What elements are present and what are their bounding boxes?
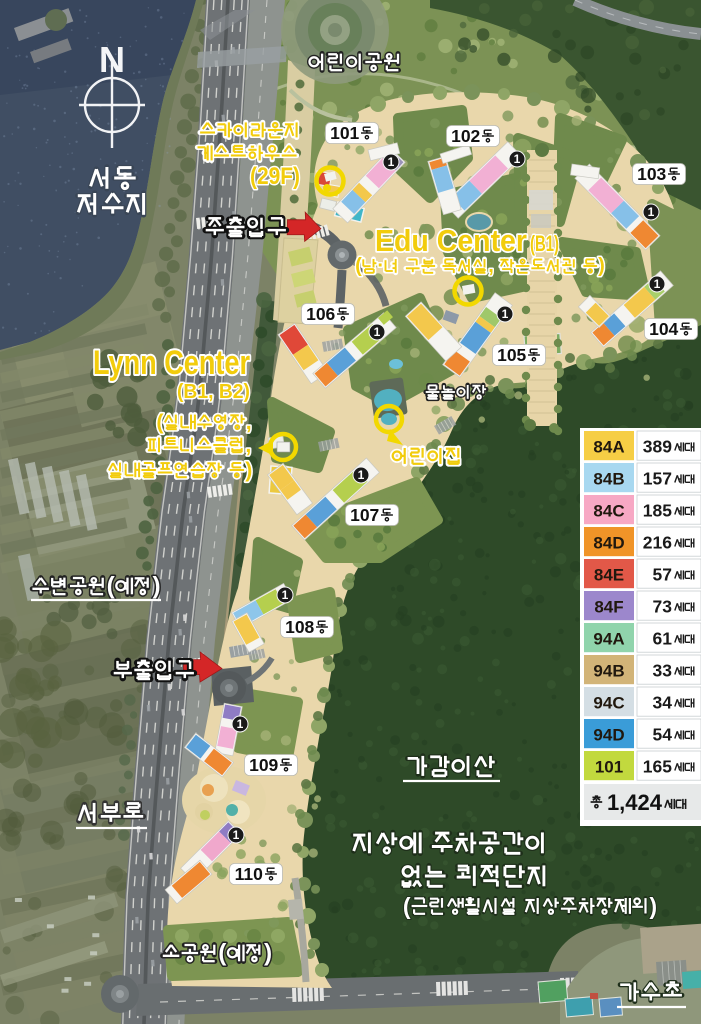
svg-text:1: 1 — [374, 325, 381, 339]
svg-text:61: 61 — [653, 629, 673, 649]
svg-text:109: 109 — [249, 755, 278, 775]
svg-text:157: 157 — [643, 469, 672, 489]
svg-text:57: 57 — [653, 565, 672, 585]
svg-text:,: , — [245, 433, 251, 457]
svg-text:1: 1 — [237, 717, 244, 731]
svg-text:102: 102 — [451, 126, 480, 146]
svg-text:): ) — [649, 893, 657, 919]
svg-text:94A: 94A — [593, 630, 624, 649]
svg-text:(B1, B2): (B1, B2) — [177, 381, 250, 403]
svg-text:·: · — [377, 255, 384, 277]
svg-text:103: 103 — [637, 164, 666, 184]
svg-text:108: 108 — [285, 617, 314, 637]
svg-text:,: , — [488, 255, 494, 277]
svg-text:1: 1 — [388, 155, 395, 169]
svg-text:1: 1 — [654, 277, 661, 291]
svg-text:101: 101 — [330, 123, 359, 143]
svg-text:1: 1 — [514, 152, 521, 166]
svg-text:73: 73 — [653, 597, 673, 617]
svg-text:84B: 84B — [593, 470, 624, 489]
svg-text:84D: 84D — [593, 534, 624, 553]
svg-text:185: 185 — [643, 501, 672, 521]
svg-text:84E: 84E — [594, 566, 624, 585]
svg-text:34: 34 — [653, 693, 673, 713]
svg-text:N: N — [99, 39, 125, 80]
svg-text:104: 104 — [649, 319, 678, 339]
svg-text:(: ( — [107, 573, 116, 600]
svg-text:Lynn Center: Lynn Center — [93, 344, 250, 382]
svg-text:84F: 84F — [594, 598, 623, 617]
svg-text:110: 110 — [235, 864, 263, 884]
svg-text:(B1): (B1) — [530, 231, 559, 256]
svg-text:1: 1 — [282, 588, 289, 602]
svg-text:(: ( — [156, 410, 164, 434]
svg-text:94B: 94B — [593, 662, 624, 681]
svg-text:216: 216 — [643, 533, 672, 553]
svg-text:389: 389 — [643, 437, 672, 457]
svg-text:94D: 94D — [593, 726, 624, 745]
svg-text:1: 1 — [358, 468, 365, 482]
svg-text:(29F): (29F) — [250, 163, 300, 190]
svg-text:1,424: 1,424 — [607, 790, 663, 815]
svg-text:(: ( — [403, 893, 411, 919]
svg-text:106: 106 — [306, 304, 335, 324]
svg-text:): ) — [598, 255, 605, 277]
svg-text:): ) — [264, 940, 272, 967]
svg-text:): ) — [245, 458, 252, 482]
svg-text:165: 165 — [643, 757, 672, 777]
svg-text:54: 54 — [653, 725, 673, 745]
svg-text:Edu Center: Edu Center — [375, 223, 527, 258]
svg-text:107: 107 — [350, 505, 379, 525]
svg-text:101: 101 — [595, 758, 623, 777]
svg-text:1: 1 — [502, 307, 509, 321]
svg-text:94C: 94C — [593, 694, 624, 713]
svg-text:(: ( — [355, 255, 362, 277]
svg-text:105: 105 — [497, 345, 526, 365]
svg-text:): ) — [152, 573, 160, 600]
svg-text:84C: 84C — [593, 502, 624, 521]
svg-text:33: 33 — [653, 661, 673, 681]
svg-text:,: , — [246, 410, 252, 434]
svg-text:(: ( — [218, 940, 227, 967]
svg-text:1: 1 — [233, 828, 240, 842]
svg-text:84A: 84A — [593, 438, 624, 457]
svg-text:1: 1 — [648, 205, 655, 219]
